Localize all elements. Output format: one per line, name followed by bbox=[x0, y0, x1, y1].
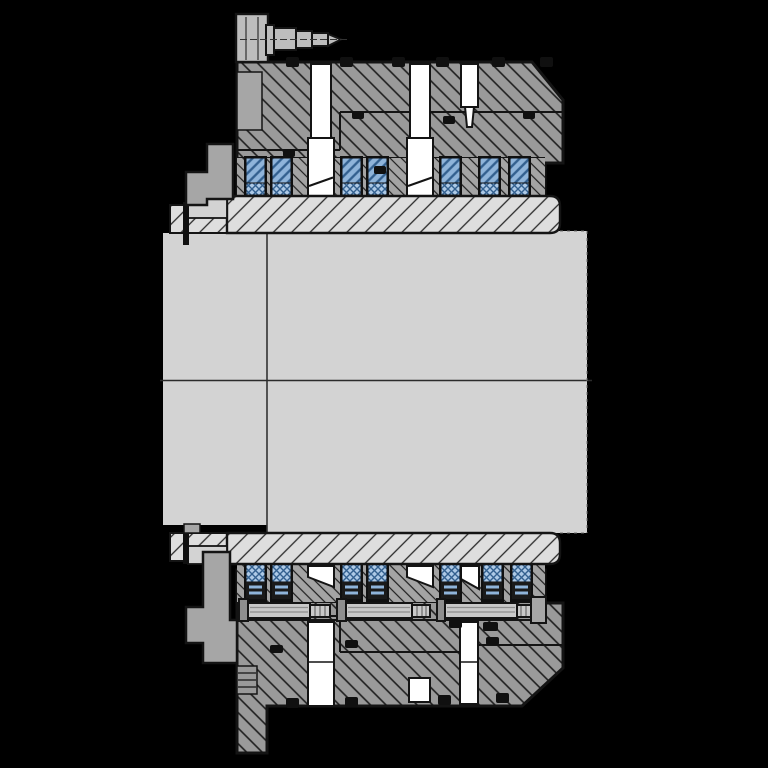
seal-ring bbox=[483, 622, 498, 631]
seal-ring bbox=[374, 166, 386, 174]
sprag-rollers-lower bbox=[244, 562, 533, 603]
bolt-channel-pocket bbox=[409, 678, 430, 702]
seal-ring bbox=[345, 640, 358, 648]
grease-fitting-hex bbox=[236, 14, 268, 62]
sprag-roller bbox=[244, 562, 267, 603]
seal-ring bbox=[352, 111, 364, 119]
sprag-roller bbox=[244, 156, 267, 197]
seal-ring bbox=[286, 57, 299, 67]
seal-ring bbox=[438, 695, 451, 705]
seal-ring bbox=[486, 637, 499, 645]
bolt-channel bbox=[461, 64, 478, 107]
sprag-roller bbox=[508, 156, 531, 197]
sprag-roller bbox=[481, 562, 504, 603]
sprag-roller bbox=[478, 156, 501, 197]
retaining-pin bbox=[183, 202, 189, 245]
seal-ring bbox=[392, 57, 405, 67]
bolt-channel bbox=[407, 138, 433, 196]
shaft-left-section bbox=[163, 233, 267, 525]
seal-ring bbox=[345, 697, 358, 707]
sprag-roller bbox=[340, 562, 363, 603]
sprag-roller bbox=[439, 156, 462, 197]
flange-face-strip bbox=[237, 72, 262, 130]
bolt-head bbox=[531, 597, 546, 623]
shaft-assembly bbox=[160, 231, 592, 533]
bolt-channel bbox=[460, 622, 478, 704]
seal-ring bbox=[286, 698, 299, 708]
sprag-roller bbox=[340, 156, 363, 197]
sprag-roller bbox=[439, 562, 462, 603]
drawing-canvas bbox=[0, 0, 768, 768]
seal-ring bbox=[496, 693, 509, 703]
seal-ring bbox=[443, 116, 455, 124]
sprag-roller bbox=[270, 156, 293, 197]
seal-ring bbox=[340, 57, 353, 67]
bolt-channel bbox=[308, 622, 334, 706]
sprag-rollers-upper bbox=[244, 156, 531, 197]
seal-ring bbox=[436, 57, 449, 67]
sleeve-body bbox=[227, 533, 560, 564]
bolt-channel bbox=[311, 64, 331, 138]
sprag-roller bbox=[366, 562, 389, 603]
sprag-roller bbox=[270, 562, 293, 603]
threaded-hole bbox=[237, 666, 257, 694]
bolt-channel bbox=[410, 64, 430, 138]
sprag-roller bbox=[366, 156, 389, 197]
retaining-pin bbox=[183, 533, 189, 564]
seal-ring bbox=[492, 57, 505, 67]
sectional-drawing bbox=[0, 0, 768, 768]
bolt-channel-tip bbox=[465, 107, 474, 127]
seal-ring bbox=[523, 111, 535, 119]
retaining-clip bbox=[184, 524, 200, 533]
seal-ring bbox=[283, 149, 295, 157]
seal-ring bbox=[540, 57, 553, 67]
seal-ring bbox=[270, 645, 283, 653]
seal-ring bbox=[449, 620, 462, 628]
sleeve-body bbox=[227, 196, 560, 233]
shaft-large-section bbox=[267, 231, 587, 533]
bolt-channel bbox=[308, 138, 334, 196]
sprag-roller bbox=[510, 562, 533, 603]
